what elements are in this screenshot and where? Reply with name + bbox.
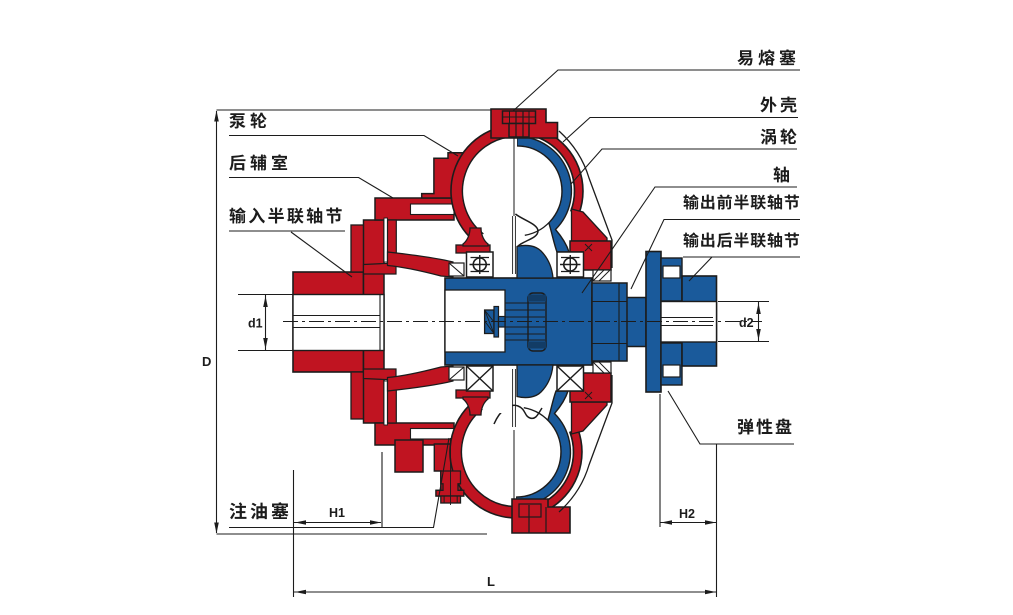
svg-text:L: L xyxy=(487,574,495,589)
svg-text:H1: H1 xyxy=(329,506,345,520)
svg-text:d2: d2 xyxy=(739,316,754,330)
svg-text:d1: d1 xyxy=(248,317,263,331)
svg-text:H2: H2 xyxy=(679,507,695,521)
svg-text:D: D xyxy=(202,354,211,369)
